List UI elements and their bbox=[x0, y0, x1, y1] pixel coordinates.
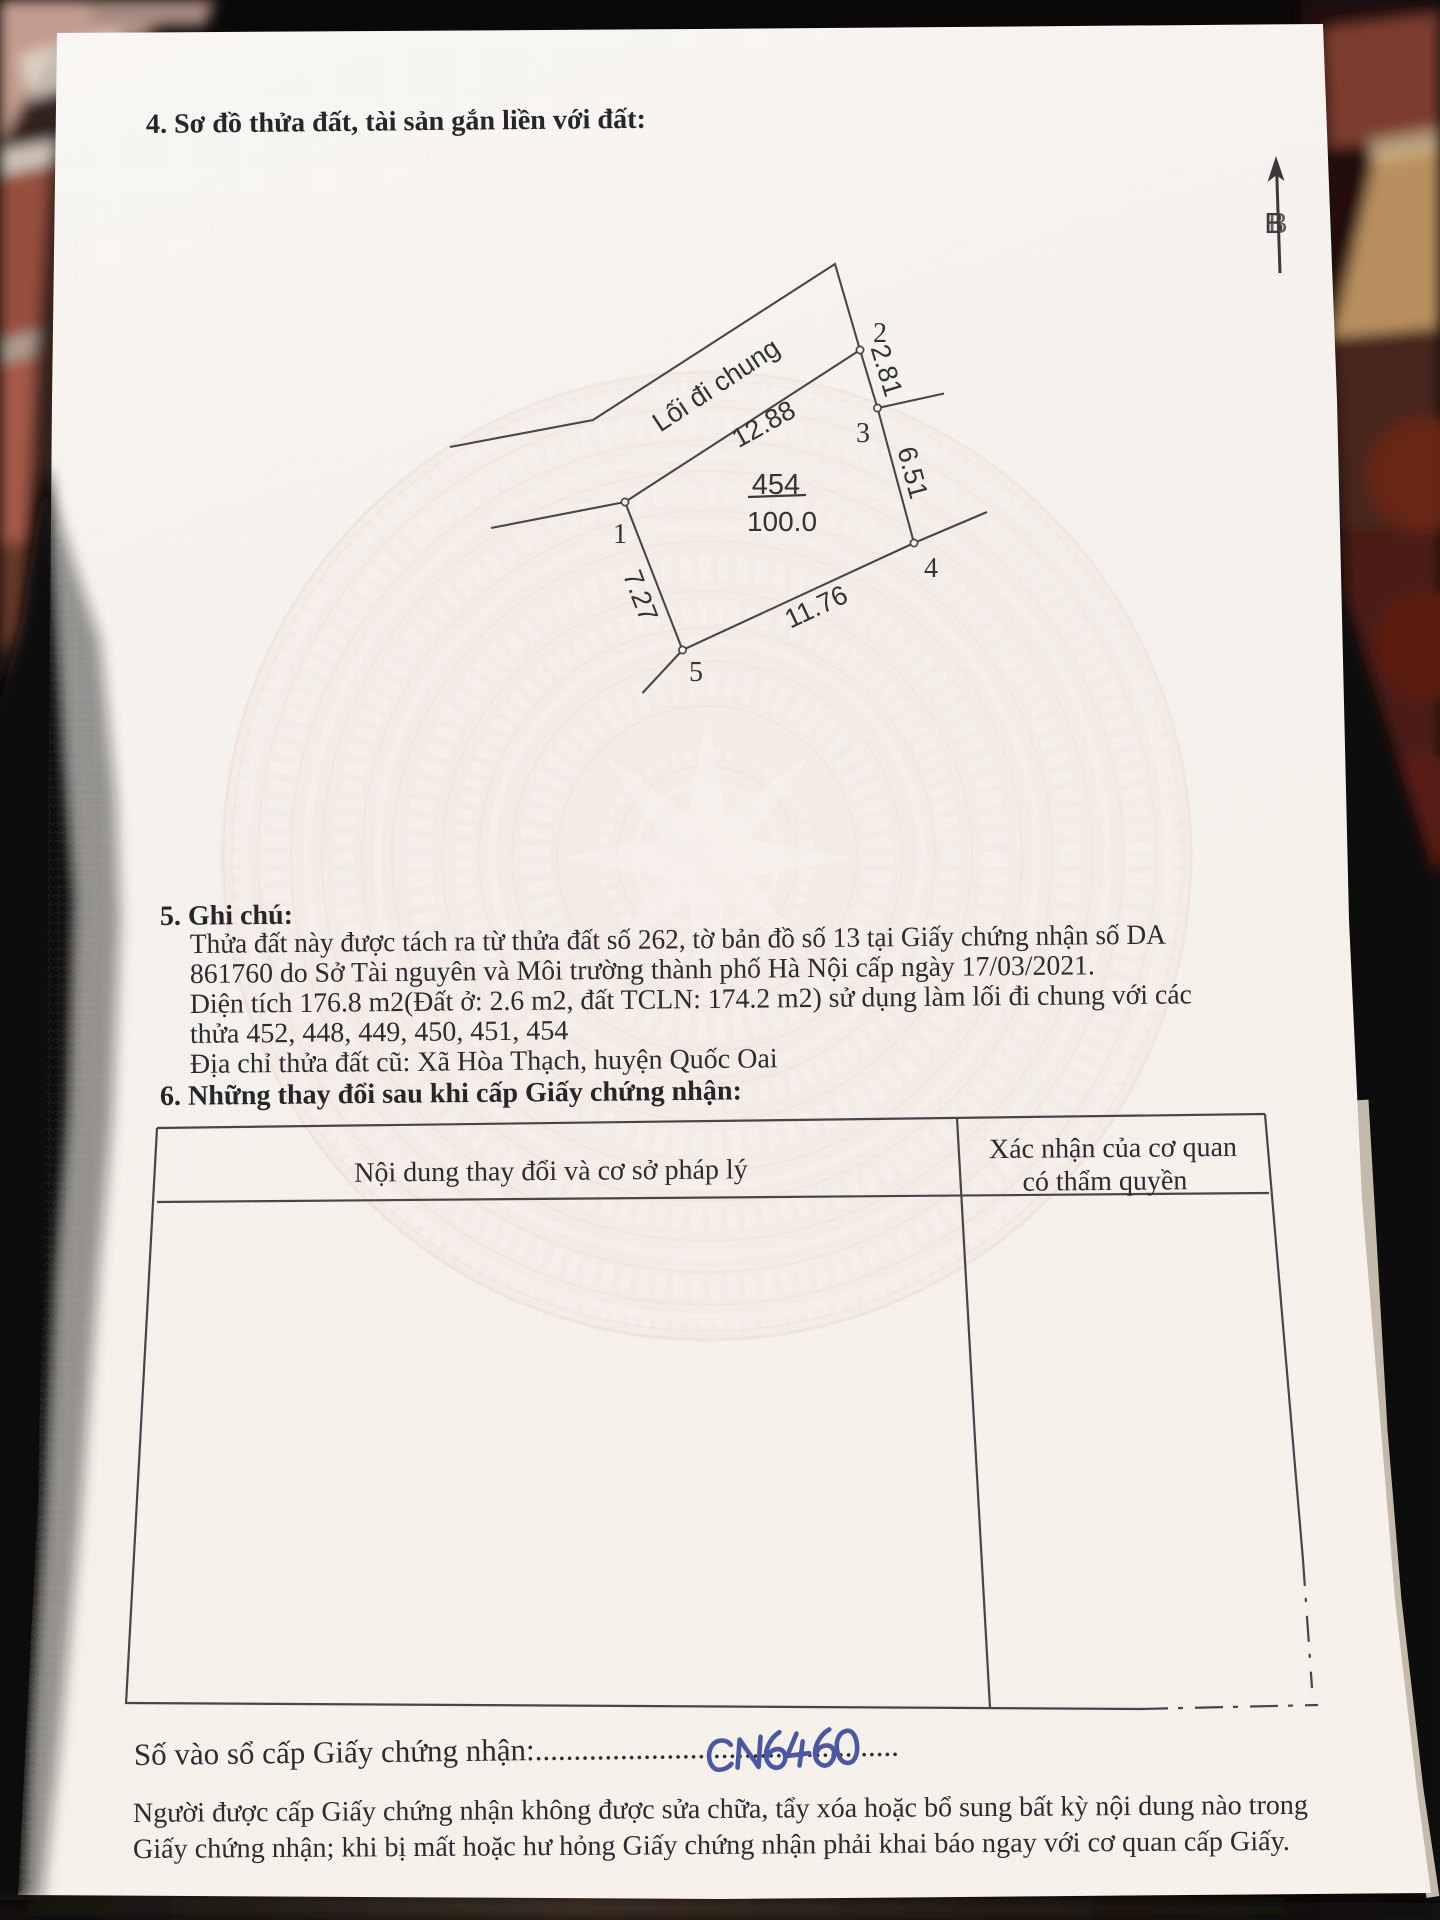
svg-text:100.0: 100.0 bbox=[747, 506, 817, 537]
svg-text:5. Ghi chú:: 5. Ghi chú: bbox=[160, 900, 293, 932]
svg-text:Nội dung thay đổi và cơ sở phá: Nội dung thay đổi và cơ sở pháp lý bbox=[354, 1154, 748, 1188]
svg-text:B: B bbox=[1268, 208, 1287, 240]
svg-text:thửa 452, 448, 449, 450, 451,: thửa 452, 448, 449, 450, 451, 454 bbox=[190, 1015, 569, 1050]
svg-text:6. Những thay đổi sau khi cấp: 6. Những thay đổi sau khi cấp Giấy chứng… bbox=[160, 1075, 742, 1112]
svg-text:3: 3 bbox=[856, 418, 870, 449]
svg-text:4: 4 bbox=[924, 553, 938, 584]
svg-text:có thẩm quyền: có thẩm quyền bbox=[1022, 1165, 1187, 1197]
svg-text:4. Sơ đồ thửa đất, tài sản gắn: 4. Sơ đồ thửa đất, tài sản gắn liền với … bbox=[146, 104, 646, 140]
svg-text:Xác nhận của cơ quan: Xác nhận của cơ quan bbox=[989, 1132, 1237, 1165]
svg-text:Địa chỉ thửa đất cũ: Xã Hòa Th: Địa chỉ thửa đất cũ: Xã Hòa Thạch, huyện… bbox=[190, 1043, 778, 1080]
svg-text:5: 5 bbox=[689, 657, 703, 688]
svg-text:1: 1 bbox=[613, 519, 627, 550]
